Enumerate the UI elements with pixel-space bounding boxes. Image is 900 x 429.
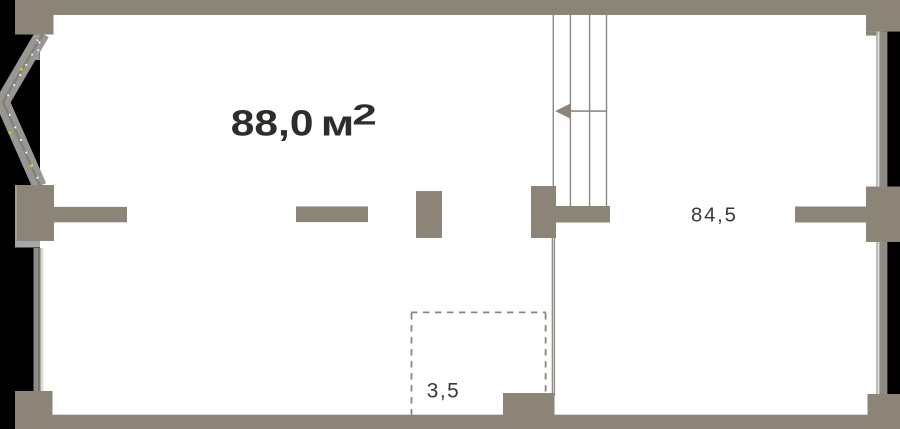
- svg-text:м: м: [321, 103, 355, 144]
- svg-text:3,5: 3,5: [427, 380, 460, 403]
- svg-text:84,5: 84,5: [691, 205, 738, 227]
- svg-text:88,0: 88,0: [231, 103, 314, 143]
- svg-text:2: 2: [352, 98, 377, 130]
